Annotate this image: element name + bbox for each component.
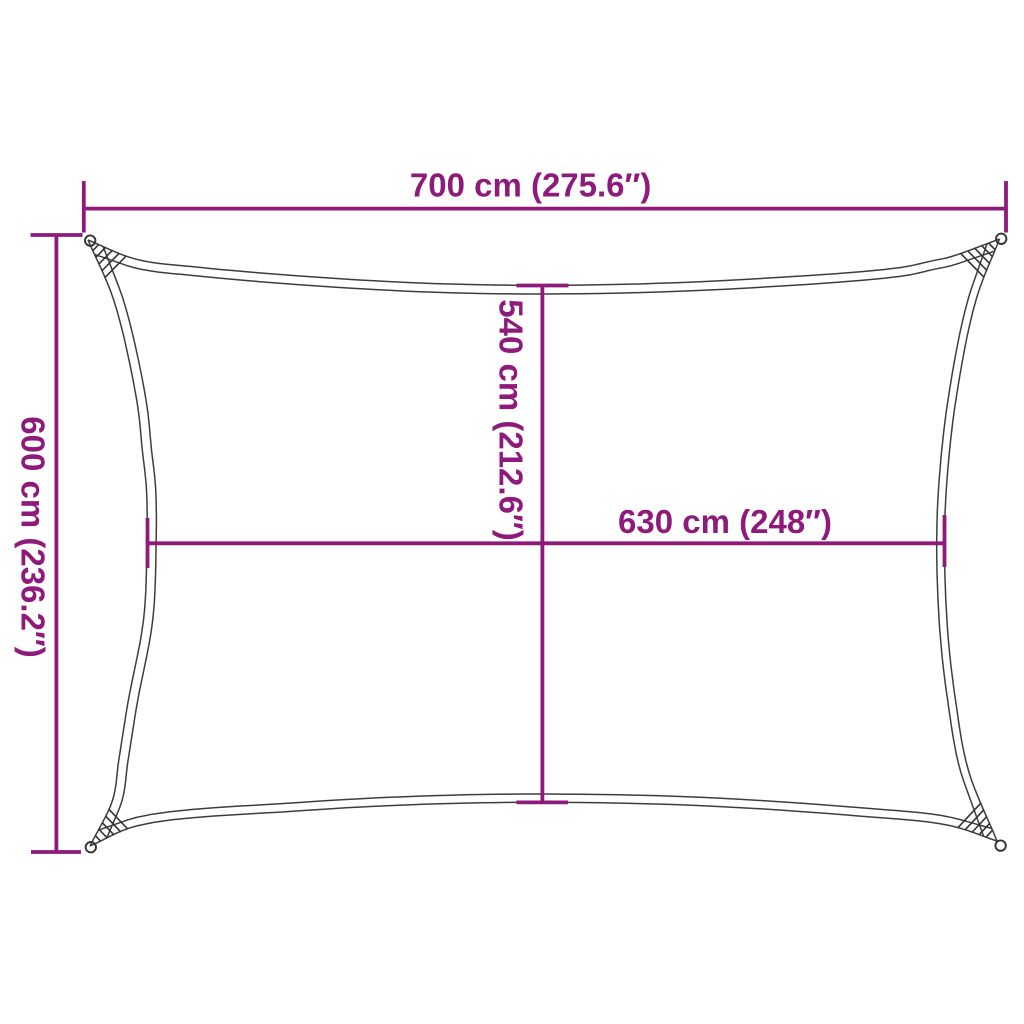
svg-text:600 cm (236.2″): 600 cm (236.2″) [15, 416, 52, 657]
svg-text:540 cm (212.6″): 540 cm (212.6″) [493, 299, 530, 540]
svg-text:700 cm (275.6″): 700 cm (275.6″) [410, 166, 651, 203]
svg-text:630 cm (248″): 630 cm (248″) [618, 503, 832, 540]
